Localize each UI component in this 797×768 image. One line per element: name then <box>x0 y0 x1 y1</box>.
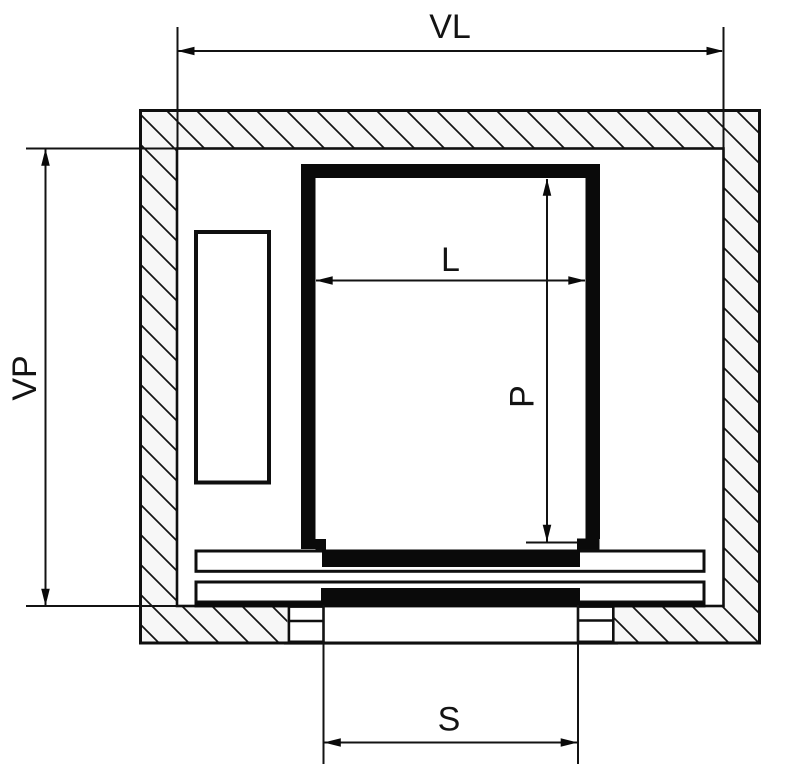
svg-text:P: P <box>504 385 542 408</box>
svg-text:S: S <box>438 701 461 739</box>
svg-text:VP: VP <box>6 355 44 400</box>
svg-text:VL: VL <box>429 8 471 46</box>
svg-text:L: L <box>441 241 460 279</box>
